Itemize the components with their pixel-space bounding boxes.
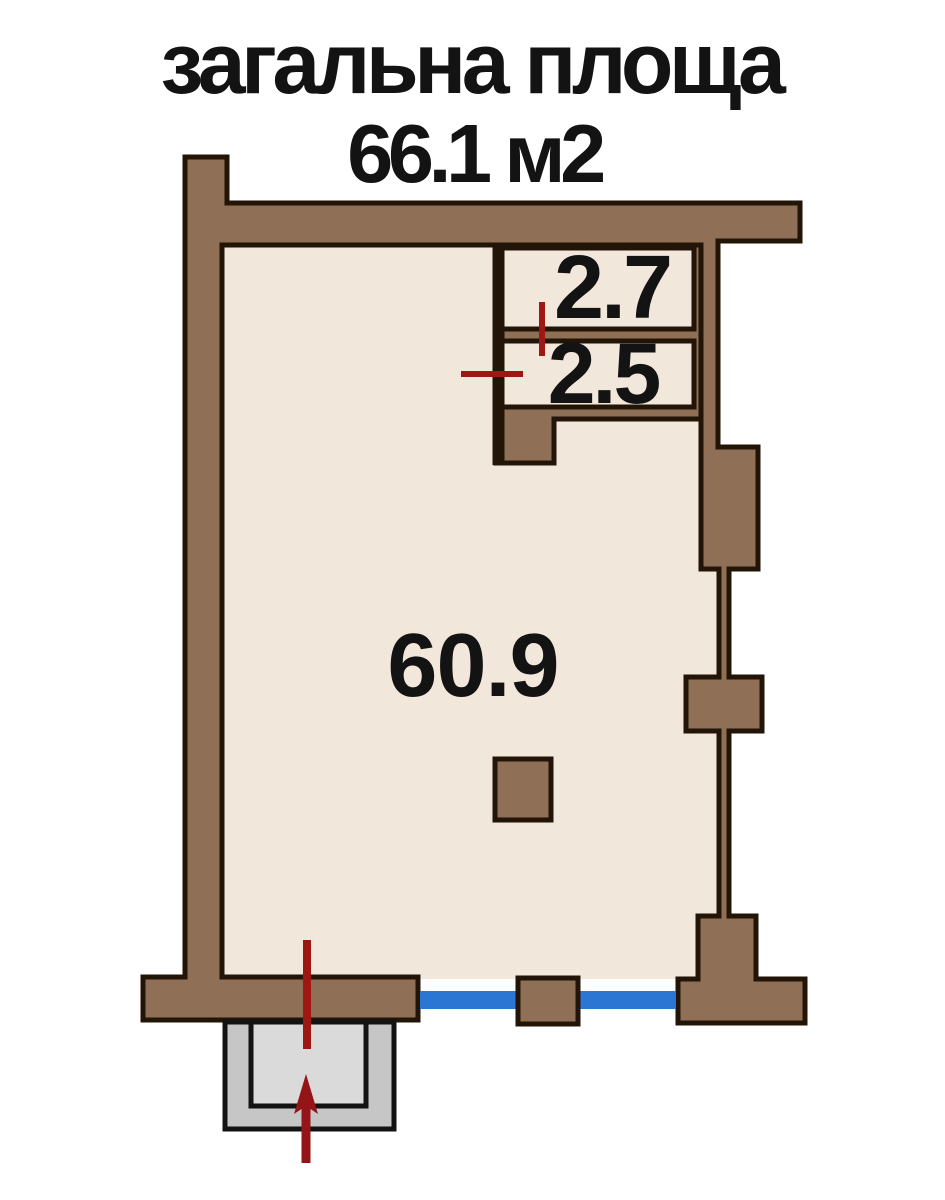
svg-text:2.5: 2.5 [548, 326, 660, 422]
svg-text:66.1 м2: 66.1 м2 [347, 107, 603, 200]
svg-text:загальна площа: загальна площа [161, 16, 787, 112]
svg-text:2.7: 2.7 [554, 238, 670, 338]
svg-text:60.9: 60.9 [387, 616, 558, 716]
